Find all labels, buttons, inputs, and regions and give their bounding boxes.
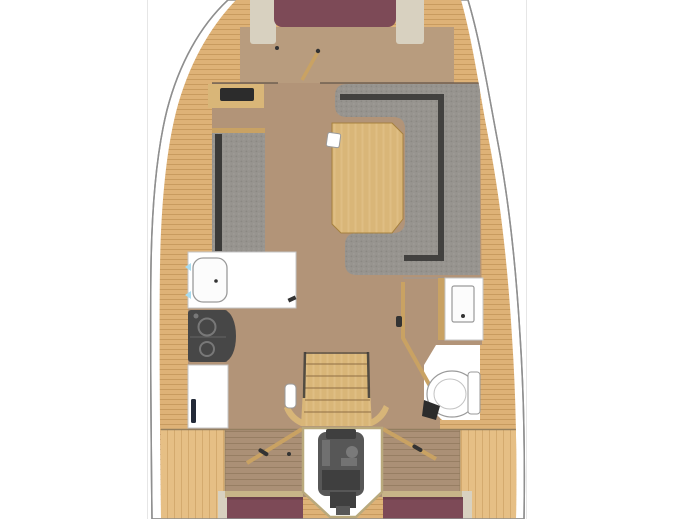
- engine-pulley: [346, 446, 358, 458]
- engine-detail: [322, 440, 330, 466]
- forward-door-handle: [316, 49, 320, 53]
- companionway-steps: [301, 352, 372, 426]
- starboard-aft-berth-cushion: [383, 497, 463, 519]
- yacht-floorplan-image: [0, 0, 692, 519]
- berth-head-trim: [225, 491, 303, 498]
- salon-table: [332, 123, 403, 233]
- engine-detail: [330, 492, 356, 508]
- stove-knob: [194, 314, 199, 319]
- step-rail: [368, 352, 369, 398]
- engine-detail: [341, 458, 357, 466]
- floor-fitting-dot: [275, 46, 279, 50]
- grab-handle: [285, 384, 296, 408]
- port-aft-deck: [161, 430, 225, 519]
- floorplan-svg: [0, 0, 692, 519]
- berth-cushion-edge: [383, 497, 463, 500]
- engine-detail: [336, 506, 350, 515]
- engine-compartment: [303, 428, 382, 517]
- floor-fitting-dot: [287, 452, 291, 456]
- vanity-drain: [461, 314, 465, 318]
- forward-v-berth-cushion: [274, 0, 396, 27]
- berth-side-trim: [462, 491, 472, 519]
- forward-starboard-shelf: [396, 0, 424, 44]
- forward-port-shelf: [250, 0, 276, 44]
- step-rail: [304, 352, 305, 398]
- toilet-tank: [468, 372, 480, 414]
- port-settee-backrest: [215, 134, 222, 251]
- counter-handle: [191, 399, 196, 423]
- sink-drain: [214, 279, 218, 283]
- table-latch: [326, 132, 341, 148]
- head-door-handle: [396, 316, 402, 327]
- engine-detail: [326, 429, 356, 439]
- galley-sink: [193, 258, 227, 302]
- engine-detail: [322, 470, 360, 490]
- port-aft-berth-cushion: [227, 497, 303, 519]
- berth-cushion-edge: [227, 497, 303, 500]
- berth-head-trim: [382, 491, 462, 498]
- port-cabinet-inset: [220, 88, 254, 101]
